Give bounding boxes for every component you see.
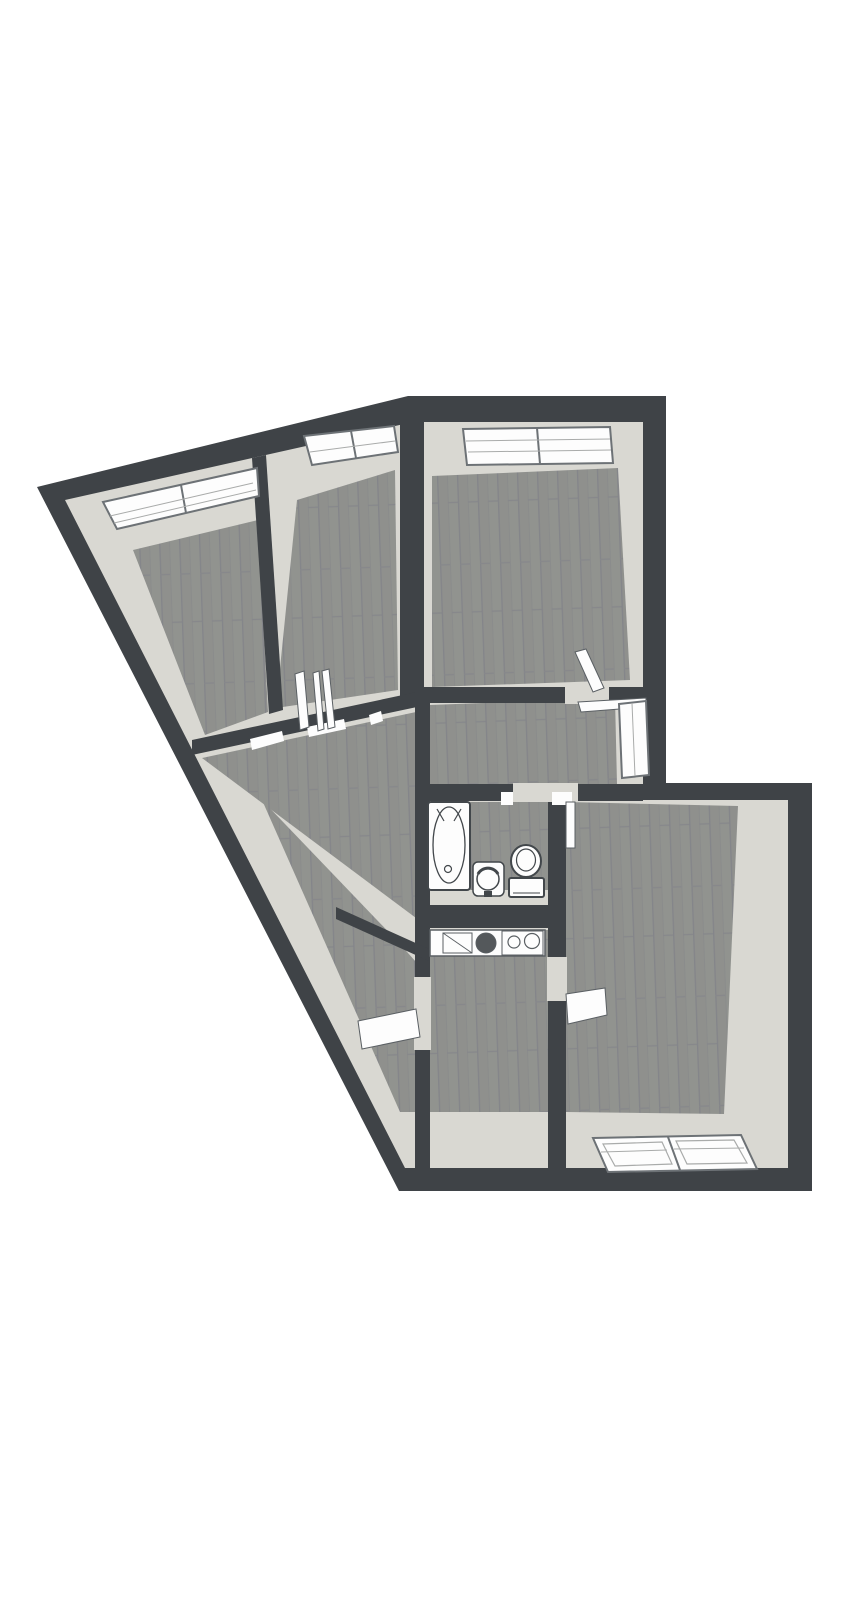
toilet-tank bbox=[509, 878, 544, 897]
doorway-kitchen-east bbox=[547, 957, 567, 1001]
wall-left-spine bbox=[415, 692, 430, 1168]
wall-room2-room3 bbox=[400, 421, 424, 700]
door-bedroom bbox=[566, 802, 575, 848]
sink-tap bbox=[484, 891, 492, 897]
bathtub bbox=[428, 802, 470, 890]
floorplan-svg bbox=[0, 0, 867, 1600]
floorplan-shapes bbox=[0, 0, 867, 1600]
toilet-bowl bbox=[511, 845, 541, 877]
kitchen-floor bbox=[430, 930, 548, 1112]
room3-floor bbox=[432, 468, 630, 687]
door-frame-bath-a bbox=[501, 792, 513, 805]
kitchen-burner-right bbox=[525, 934, 540, 949]
bedroom-floor bbox=[566, 802, 738, 1114]
kitchen-sink-basin bbox=[476, 933, 496, 953]
wall-bath-south bbox=[415, 905, 566, 928]
kitchen-burner-left bbox=[508, 936, 520, 948]
floorplan-canvas bbox=[0, 0, 867, 1600]
doorway-bathroom bbox=[513, 783, 553, 802]
